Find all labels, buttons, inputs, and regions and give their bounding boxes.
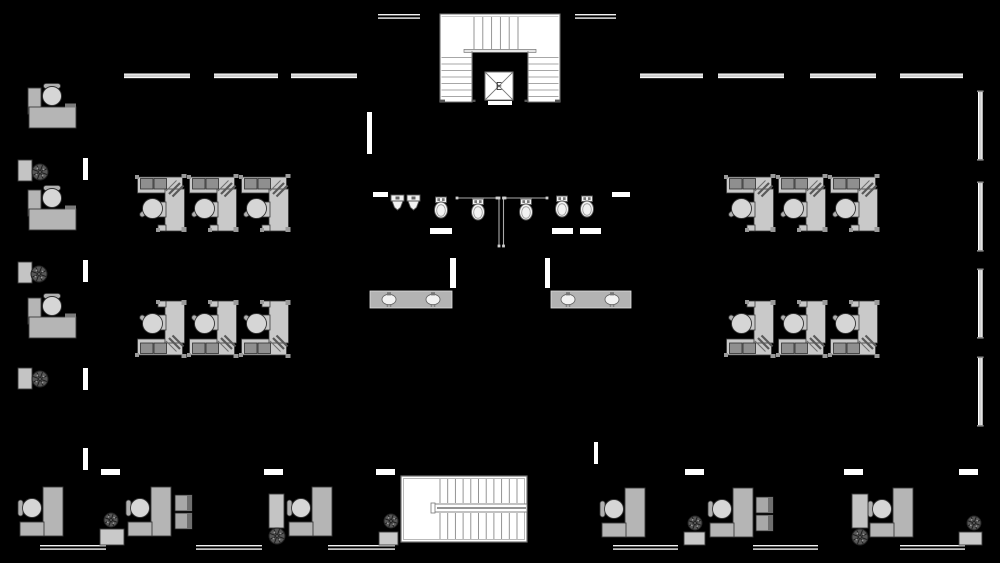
private-office-desk: [600, 488, 645, 537]
side-table: [100, 529, 124, 545]
plant: [967, 516, 981, 530]
cubicle-workstation: [187, 300, 239, 358]
stairs-layer: E: [401, 14, 560, 542]
door-opening: [844, 469, 863, 475]
door-opening: [552, 228, 573, 234]
side-table: [684, 532, 705, 545]
storage-bins: [730, 343, 743, 354]
storage-bins: [154, 343, 167, 354]
floor-plan: E: [0, 0, 1000, 563]
storage-bins: [141, 179, 154, 190]
storage-bins: [193, 343, 206, 354]
storage-cabinet: [18, 160, 32, 181]
storage-bins: [834, 179, 847, 190]
storage-bins: [258, 179, 271, 190]
side-table: [379, 532, 398, 545]
elevator: E: [485, 72, 513, 100]
door-opening: [545, 258, 550, 288]
office-chair: [43, 189, 62, 208]
office-chair: [605, 500, 624, 519]
urinal: [391, 195, 404, 210]
office-chair: [131, 499, 150, 518]
reception-desk: [28, 84, 76, 129]
office-chair: [713, 500, 732, 519]
toilet: [435, 197, 448, 218]
private-office-desk: [868, 488, 913, 537]
plant: [852, 529, 868, 545]
office-chair: [23, 499, 42, 518]
wall-double: [40, 545, 106, 550]
storage-bins: [782, 179, 795, 190]
office-chair: [143, 199, 163, 219]
toilet: [556, 196, 569, 217]
cubicle-workstation: [239, 300, 291, 358]
private-office-desk: [708, 488, 753, 537]
wall-double: [753, 545, 818, 550]
cubicle-workstation: [135, 174, 187, 232]
storage-bins: [141, 343, 154, 354]
wall-double: [328, 545, 395, 550]
cubicle-workstation: [724, 300, 776, 358]
reception-desk: [28, 294, 76, 339]
wall-window: [291, 74, 357, 79]
storage-bins: [847, 343, 860, 354]
file-cabinet: [756, 497, 773, 531]
urinal: [407, 195, 420, 210]
elevator-label: E: [496, 81, 503, 93]
plant: [32, 164, 48, 180]
office-chair: [43, 87, 62, 106]
cubicle-workstation: [828, 300, 880, 358]
storage-cabinet: [269, 494, 284, 528]
office-chair: [195, 199, 215, 219]
cubicle-workstation: [239, 174, 291, 232]
office-chair: [836, 199, 856, 219]
plant: [269, 528, 285, 544]
plant: [31, 266, 47, 282]
door-opening: [685, 469, 704, 475]
plant: [32, 371, 48, 387]
door-opening: [83, 158, 88, 180]
toilet: [520, 199, 533, 220]
cubicle-workstation: [776, 174, 828, 232]
wall-double: [575, 14, 616, 19]
wall-window: [977, 357, 984, 427]
wall-double: [378, 14, 420, 19]
storage-bins: [743, 343, 756, 354]
private-office-desk: [126, 487, 171, 536]
toilet: [472, 199, 485, 220]
storage-cabinet: [18, 262, 32, 283]
wall-window: [124, 74, 190, 79]
office-chair: [195, 314, 215, 334]
staircase-lower: [401, 476, 527, 542]
storage-bins: [193, 179, 206, 190]
storage-bins: [245, 179, 258, 190]
office-chair: [873, 500, 892, 519]
storage-bins: [245, 343, 258, 354]
stall-partition: [498, 197, 501, 248]
restroom-layer: [370, 195, 631, 308]
wall-window: [810, 74, 876, 79]
storage-bins: [782, 343, 795, 354]
storage-cabinet: [18, 368, 32, 389]
plant: [104, 513, 118, 527]
wall-double: [196, 545, 262, 550]
private-office-desk: [18, 487, 63, 536]
wall-double: [900, 545, 965, 550]
door-opening: [373, 192, 388, 197]
wall-window: [214, 74, 278, 79]
door-opening: [594, 442, 598, 464]
door-opening: [101, 469, 120, 475]
storage-bins: [743, 179, 756, 190]
door-opening: [450, 258, 456, 288]
side-table: [959, 532, 982, 545]
storage-bins: [795, 179, 808, 190]
storage-bins: [154, 179, 167, 190]
storage-bins: [834, 343, 847, 354]
wall-window: [977, 269, 984, 339]
reception-desk: [28, 186, 76, 231]
floor-plan-canvas: E: [0, 0, 1000, 563]
door-opening: [83, 368, 88, 390]
door-opening: [83, 260, 88, 282]
wall-window: [900, 74, 963, 79]
door-opening: [264, 469, 283, 475]
wall-window: [718, 74, 784, 79]
door-opening: [83, 448, 88, 470]
door-opening: [488, 101, 512, 105]
cubicle-workstation: [187, 174, 239, 232]
door-opening: [612, 192, 630, 197]
cubicle-workstation: [776, 300, 828, 358]
door-opening: [959, 469, 978, 475]
office-chair: [836, 314, 856, 334]
storage-cabinet: [852, 494, 868, 528]
door-opening: [376, 469, 395, 475]
door-opening: [367, 112, 372, 154]
file-cabinet: [175, 495, 192, 529]
office-chair: [143, 314, 163, 334]
office-chair: [732, 314, 752, 334]
sink-counter: [551, 291, 631, 308]
cubicle-workstation: [135, 300, 187, 358]
office-chair: [292, 499, 311, 518]
storage-bins: [730, 179, 743, 190]
storage-bins: [206, 343, 219, 354]
private-office-desk: [287, 487, 332, 536]
wall-window: [977, 91, 984, 161]
toilet: [581, 196, 594, 217]
plant: [384, 514, 398, 528]
wall-double: [613, 545, 678, 550]
wall-window: [977, 182, 984, 252]
cubicle-workstation: [828, 174, 880, 232]
storage-bins: [258, 343, 271, 354]
door-opening: [580, 228, 601, 234]
office-chair: [43, 297, 62, 316]
plant: [688, 516, 702, 530]
wall-window: [640, 74, 703, 79]
office-chair: [784, 199, 804, 219]
storage-bins: [847, 179, 860, 190]
storage-bins: [206, 179, 219, 190]
office-chair: [732, 199, 752, 219]
storage-bins: [795, 343, 808, 354]
cubicle-workstation: [724, 174, 776, 232]
office-chair: [247, 314, 267, 334]
office-chair: [247, 199, 267, 219]
office-chair: [784, 314, 804, 334]
door-opening: [430, 228, 452, 234]
sink-counter: [370, 291, 452, 308]
stall-partition: [502, 197, 505, 248]
